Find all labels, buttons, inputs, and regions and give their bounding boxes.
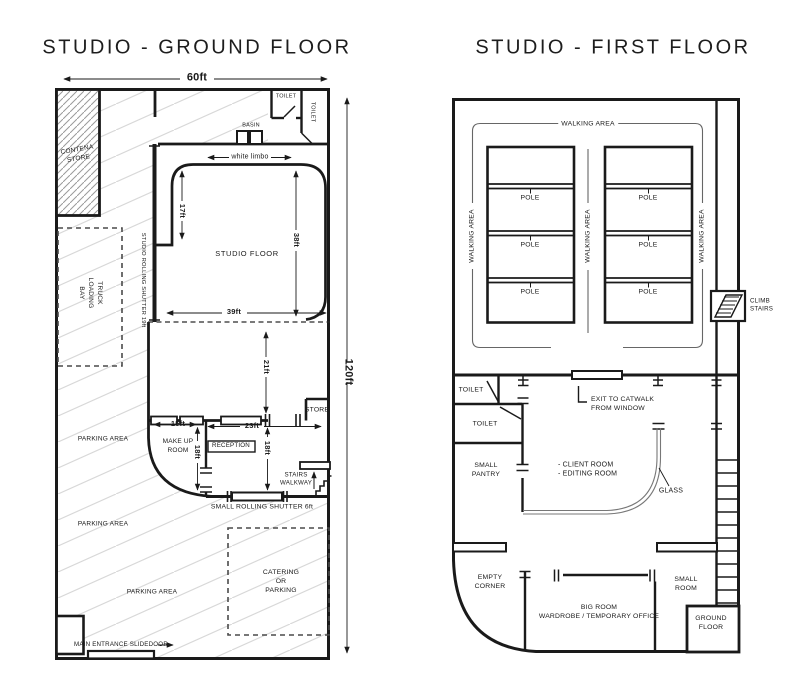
pole-label: POLE (521, 287, 540, 296)
main-entrance-label: MAIN ENTRANCE SLIDEDOOR (74, 641, 168, 649)
dim-18ft-right: 18ft (262, 441, 272, 455)
walking-area-right: WALKING AREA (697, 209, 706, 263)
room-basin: BASIN (242, 122, 260, 129)
pole-label: POLE (639, 240, 658, 249)
room-small-pantry: SMALL PANTRY (472, 461, 500, 479)
room-make-up: MAKE UP ROOM (163, 438, 194, 456)
walking-area-left: WALKING AREA (467, 209, 476, 263)
dim-21ft: 21ft (261, 360, 271, 374)
dim-39ft: 39ft (227, 307, 241, 317)
basin-icon (237, 131, 262, 144)
glass-label: GLASS (659, 486, 683, 495)
parking-area-3: PARKING AREA (127, 589, 177, 598)
parking-area-2: PARKING AREA (78, 521, 128, 530)
first-floor-title: STUDIO - FIRST FLOOR (475, 35, 750, 62)
pole-label: POLE (521, 193, 540, 202)
dim-38ft: 38ft (291, 233, 301, 247)
dim-120ft: 120ft (341, 359, 356, 386)
dim-23ft: 23ft (245, 421, 259, 431)
room-toilet-side: TOILET (308, 102, 315, 122)
room-reception: RECEPTION (212, 442, 250, 450)
dim-60ft: 60ft (187, 71, 207, 86)
climb-stairs-label: CLIMB STAIRS (750, 298, 773, 315)
dim-15ft: 15ft (171, 419, 185, 429)
ground-floor-stairs-label: GROUND FLOOR (695, 614, 726, 632)
room-truck-loading-bay: TRUCK LOADING BAY (77, 278, 103, 309)
room-toilet-2: TOILET (473, 419, 498, 428)
room-empty-corner: EMPTY CORNER (475, 573, 506, 591)
room-catering: CATERING OR PARKING (263, 568, 299, 596)
exit-to-catwalk-label: EXIT TO CATWALK FROM WINDOW (591, 395, 654, 413)
climb-stairs-icon (711, 291, 745, 321)
pole-label: POLE (639, 193, 658, 202)
ground-floor-drawing (57, 79, 348, 659)
dim-18ft-left: 18ft (192, 445, 202, 459)
walking-area-center: WALKING AREA (583, 209, 592, 263)
client-editing-room-label: - CLIENT ROOM - EDITING ROOM (558, 461, 617, 480)
window-icon (572, 371, 622, 379)
dim-white-limbo: white limbo (231, 152, 268, 161)
room-stairs-walkway: STAIRS WALKWAY (280, 472, 312, 489)
ground-floor-title: STUDIO - GROUND FLOOR (42, 35, 351, 62)
room-small-room: SMALL ROOM (674, 575, 697, 593)
room-studio-floor: STUDIO FLOOR (215, 249, 278, 259)
room-big-room: BIG ROOM WARDROBE / TEMPORARY OFFICE (539, 603, 659, 621)
room-toilet-top: TOILET (276, 93, 296, 100)
floor-plan-canvas: STUDIO - GROUND FLOOR 60ft 120ft TOILET … (0, 0, 808, 677)
walking-area-top: WALKING AREA (558, 119, 618, 128)
small-rolling-shutter-label: SMALL ROLLING SHUTTER 6ft (211, 502, 313, 511)
first-floor-drawing (453, 100, 745, 653)
dim-17ft: 17ft (177, 204, 187, 218)
room-store: STORE (305, 405, 329, 414)
studio-rolling-shutter-label: STUDIO ROLLING SHUTTER 19ft (138, 233, 146, 328)
pole-label: POLE (521, 240, 540, 249)
parking-area-1: PARKING AREA (78, 436, 128, 445)
pole-label: POLE (639, 287, 658, 296)
room-toilet-1: TOILET (459, 385, 484, 394)
